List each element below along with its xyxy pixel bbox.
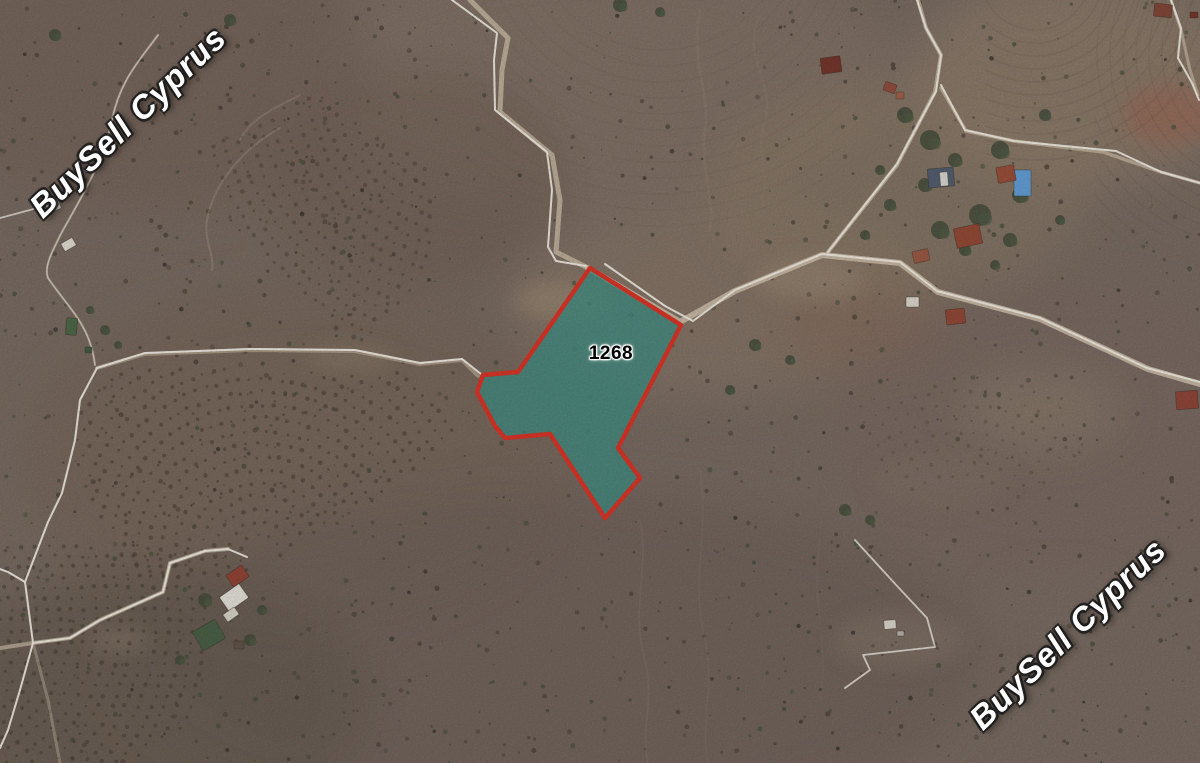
satellite-map-view[interactable]: 1268 BuySell Cyprus BuySell Cyprus <box>0 0 1200 763</box>
satellite-map-canvas[interactable] <box>0 0 1200 763</box>
grain-overlay-light <box>0 0 1200 763</box>
